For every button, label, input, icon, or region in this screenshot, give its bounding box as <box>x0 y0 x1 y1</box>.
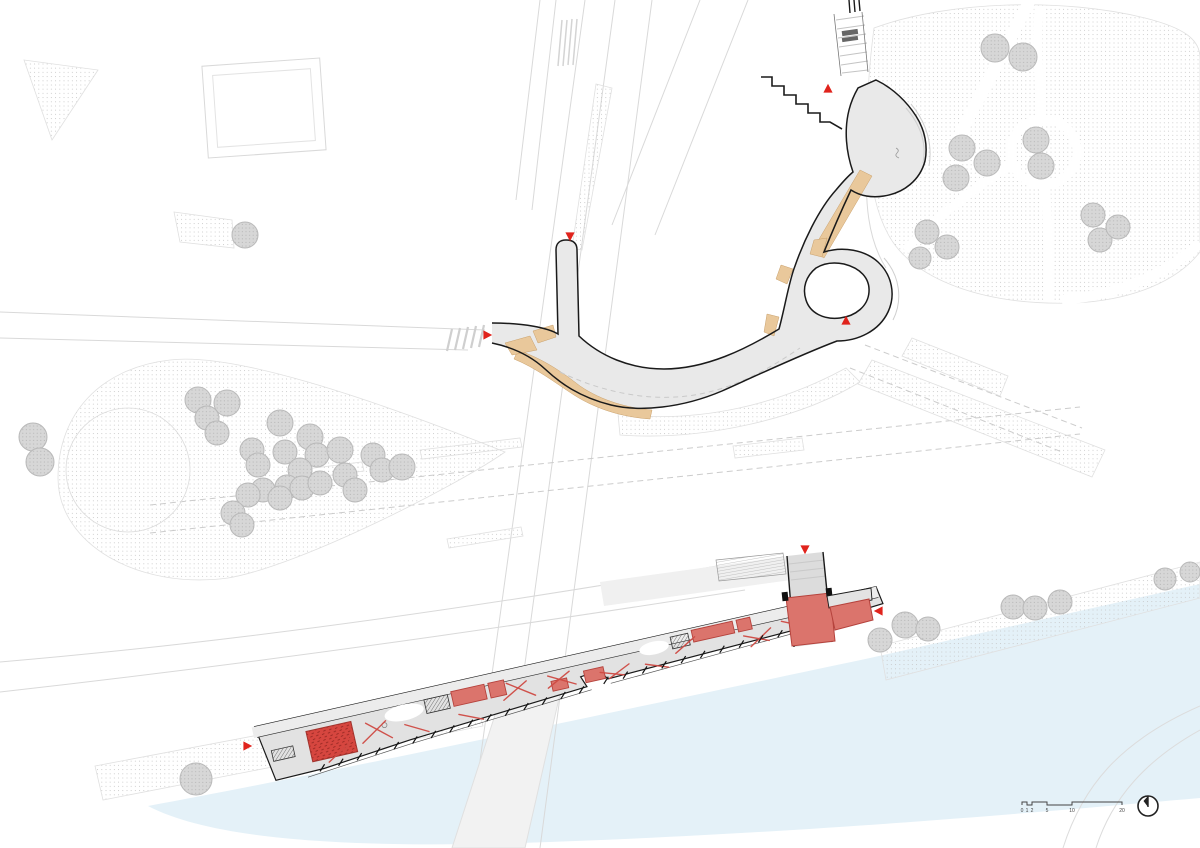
upper-stairs <box>834 0 868 76</box>
tree <box>267 410 293 436</box>
tree <box>1023 596 1047 620</box>
tree <box>389 454 415 480</box>
tree <box>915 220 939 244</box>
tree <box>232 222 258 248</box>
tree <box>892 612 918 638</box>
tree <box>909 247 931 269</box>
tree <box>230 513 254 537</box>
road-marking-stripes <box>558 19 577 66</box>
tree <box>268 486 292 510</box>
tree <box>1009 43 1037 71</box>
context-building-inner <box>213 69 316 148</box>
tree <box>1028 153 1054 179</box>
loop-island <box>804 263 869 318</box>
tree <box>1106 215 1130 239</box>
entry-marker-icon <box>874 606 883 615</box>
scale-label: 1 <box>1026 808 1029 814</box>
tree <box>949 135 975 161</box>
stipple-wedge-top <box>572 84 612 250</box>
tree <box>1154 568 1176 590</box>
scale-label: 5 <box>1046 808 1049 814</box>
stipple-by-loop <box>618 338 1105 477</box>
pier-door-tick-left <box>782 592 789 602</box>
north-arrow-icon <box>1138 796 1158 816</box>
tree <box>19 423 47 451</box>
stipple-triangle-topleft <box>24 60 98 140</box>
tree <box>1001 595 1025 619</box>
stipple-cone-midleft <box>174 212 234 248</box>
tree <box>1048 590 1072 614</box>
site-plan-canvas: 0 1 2 5 10 20 <box>0 0 1200 848</box>
stepped-building-edge <box>761 77 842 129</box>
tree <box>308 471 332 495</box>
tree <box>974 150 1000 176</box>
tree <box>916 617 940 641</box>
teardrop-park <box>58 359 505 580</box>
tree <box>935 235 959 259</box>
entry-marker-icon <box>483 330 492 339</box>
tree <box>1023 127 1049 153</box>
tree <box>205 421 229 445</box>
entry-marker-icon <box>823 84 832 93</box>
tree <box>943 165 969 191</box>
red-furniture-box <box>488 680 507 698</box>
site-plan-sheet: 0 1 2 5 10 20 <box>0 0 1200 848</box>
tree <box>343 478 367 502</box>
tree <box>868 628 892 652</box>
tree <box>180 763 212 795</box>
scale-label: 0 <box>1021 808 1024 814</box>
red-furniture-box <box>736 617 752 632</box>
tree <box>1081 203 1105 227</box>
tree <box>1180 562 1200 582</box>
tree <box>327 437 353 463</box>
tree <box>246 453 270 477</box>
scale-label: 20 <box>1119 808 1125 814</box>
entry-marker-icon <box>800 545 809 554</box>
context-building <box>202 58 326 158</box>
tree <box>981 34 1009 62</box>
scale-label: 10 <box>1069 808 1075 814</box>
tree <box>26 448 54 476</box>
scale-label: 2 <box>1031 808 1034 814</box>
